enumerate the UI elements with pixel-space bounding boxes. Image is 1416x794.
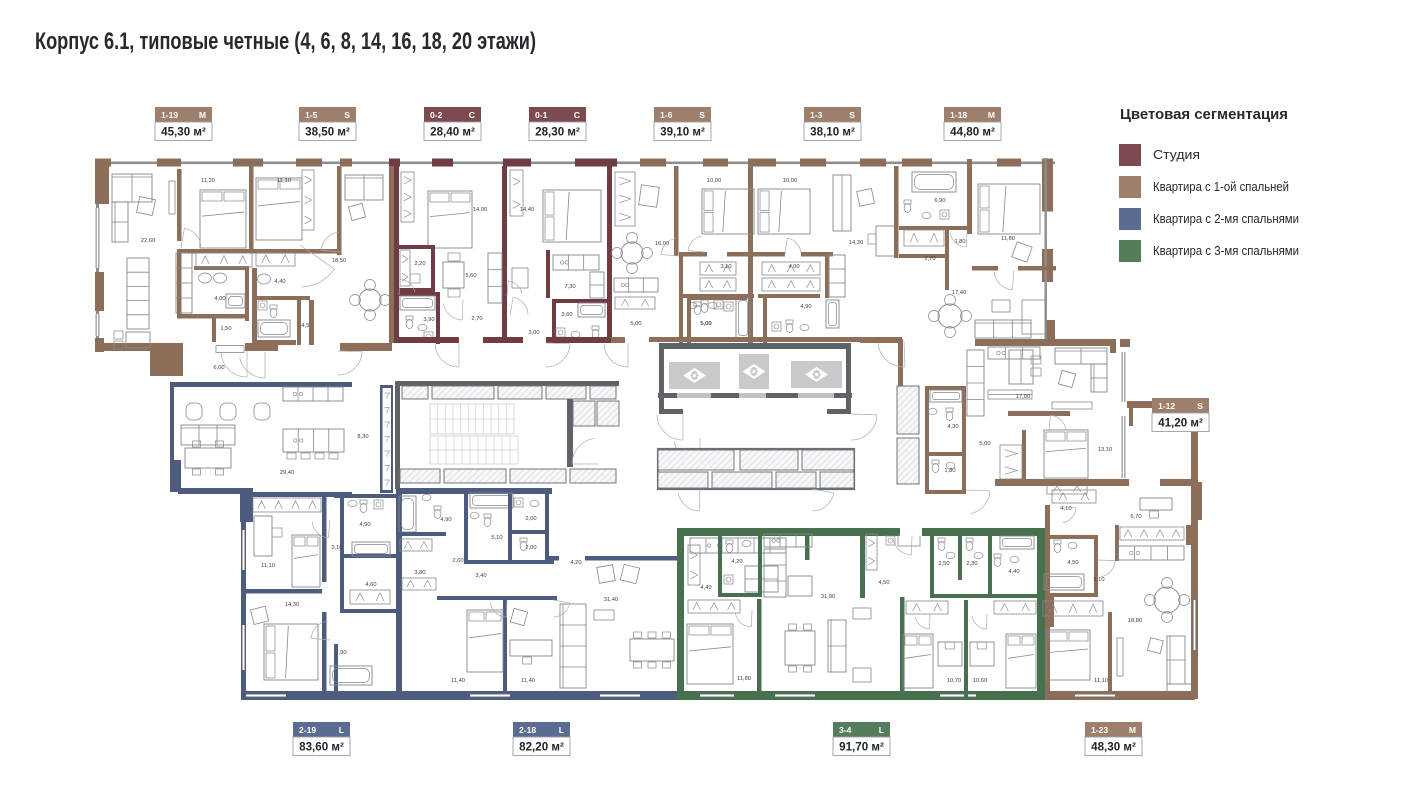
svg-text:4,60: 4,60 <box>365 582 376 588</box>
svg-text:17,40: 17,40 <box>952 290 967 296</box>
svg-text:4,90: 4,90 <box>800 304 811 310</box>
svg-text:1,80: 1,80 <box>954 239 965 245</box>
svg-text:11,80: 11,80 <box>737 676 751 682</box>
svg-text:3,00: 3,00 <box>528 330 539 336</box>
svg-text:4,40: 4,40 <box>274 279 285 285</box>
svg-text:6,90: 6,90 <box>934 198 945 204</box>
svg-text:5,60: 5,60 <box>465 273 476 279</box>
svg-text:1-19: 1-19 <box>161 110 178 120</box>
svg-text:14,30: 14,30 <box>285 602 300 608</box>
svg-text:2,70: 2,70 <box>924 256 935 262</box>
svg-text:13,10: 13,10 <box>1098 447 1113 453</box>
svg-text:2,60: 2,60 <box>452 558 463 564</box>
svg-text:83,60 м²: 83,60 м² <box>299 741 344 754</box>
svg-text:48,30 м²: 48,30 м² <box>1091 741 1136 754</box>
svg-text:41,20 м²: 41,20 м² <box>1158 417 1203 430</box>
svg-text:C: C <box>574 110 580 120</box>
svg-text:44,80 м²: 44,80 м² <box>950 126 995 139</box>
svg-text:14,40: 14,40 <box>520 207 535 213</box>
svg-text:0-2: 0-2 <box>430 110 443 120</box>
svg-text:M: M <box>1129 725 1136 735</box>
svg-text:2-18: 2-18 <box>519 725 536 735</box>
svg-text:2,00: 2,00 <box>525 516 536 522</box>
svg-text:3,10: 3,10 <box>331 545 342 551</box>
svg-text:14,00: 14,00 <box>473 207 488 213</box>
svg-text:S: S <box>699 110 705 120</box>
svg-text:1-18: 1-18 <box>950 110 967 120</box>
svg-text:10,70: 10,70 <box>947 678 962 684</box>
svg-text:22,60: 22,60 <box>141 238 156 244</box>
svg-text:4,20: 4,20 <box>570 560 581 566</box>
svg-text:3,90: 3,90 <box>423 317 434 323</box>
svg-text:6,00: 6,00 <box>213 365 224 371</box>
svg-text:11,10: 11,10 <box>1094 678 1108 684</box>
svg-text:5,00: 5,00 <box>979 441 990 447</box>
svg-text:1-23: 1-23 <box>1091 725 1108 735</box>
svg-text:18,50: 18,50 <box>332 258 347 264</box>
svg-text:S: S <box>344 110 350 120</box>
svg-text:18,80: 18,80 <box>1128 618 1143 624</box>
svg-text:8,30: 8,30 <box>357 434 368 440</box>
svg-text:C: C <box>469 110 475 120</box>
svg-text:4,90: 4,90 <box>359 522 370 528</box>
svg-text:17,00: 17,00 <box>1016 394 1031 400</box>
svg-text:5,00: 5,00 <box>700 321 711 327</box>
svg-text:16,00: 16,00 <box>655 241 670 247</box>
svg-text:45,30 м²: 45,30 м² <box>161 126 206 139</box>
svg-text:3,10: 3,10 <box>1093 577 1104 583</box>
svg-text:2-19: 2-19 <box>299 725 316 735</box>
svg-text:3,60: 3,60 <box>561 312 572 318</box>
svg-text:4,50: 4,50 <box>1067 560 1078 566</box>
svg-text:S: S <box>1197 401 1203 411</box>
svg-text:1,50: 1,50 <box>220 326 231 332</box>
svg-text:29,40: 29,40 <box>280 470 295 476</box>
svg-text:2,20: 2,20 <box>414 261 425 267</box>
svg-text:11,40: 11,40 <box>521 678 535 684</box>
svg-text:82,20 м²: 82,20 м² <box>519 741 564 754</box>
svg-text:2,50: 2,50 <box>938 561 949 567</box>
svg-text:4,90: 4,90 <box>440 517 451 523</box>
svg-text:Корпус 6.1, типовые четные (4,: Корпус 6.1, типовые четные (4, 6, 8, 14,… <box>35 28 536 55</box>
svg-text:38,10 м²: 38,10 м² <box>810 126 855 139</box>
svg-text:11,10: 11,10 <box>261 563 275 569</box>
svg-text:91,70 м²: 91,70 м² <box>839 741 884 754</box>
svg-text:4,00: 4,00 <box>214 296 225 302</box>
svg-text:10,00: 10,00 <box>707 178 722 184</box>
svg-text:6,70: 6,70 <box>1130 514 1141 520</box>
svg-text:5,10: 5,10 <box>491 535 502 541</box>
svg-text:4,50: 4,50 <box>878 580 889 586</box>
svg-text:39,10 м²: 39,10 м² <box>660 126 705 139</box>
svg-text:11,20: 11,20 <box>201 178 215 184</box>
svg-text:14,30: 14,30 <box>849 240 864 246</box>
svg-text:L: L <box>559 725 564 735</box>
svg-text:1-12: 1-12 <box>1158 401 1175 411</box>
svg-text:S: S <box>849 110 855 120</box>
svg-text:1,80: 1,80 <box>944 468 955 474</box>
svg-text:Квартира с 3-мя спальнями: Квартира с 3-мя спальнями <box>1153 244 1299 258</box>
svg-text:M: M <box>199 110 206 120</box>
svg-text:4,40: 4,40 <box>700 585 711 591</box>
svg-text:L: L <box>879 725 884 735</box>
svg-text:3,40: 3,40 <box>475 573 486 579</box>
svg-text:Квартира с 1-ой спальней: Квартира с 1-ой спальней <box>1153 180 1289 194</box>
svg-text:1-5: 1-5 <box>305 110 318 120</box>
svg-text:5,00: 5,00 <box>630 321 641 327</box>
svg-text:2,30: 2,30 <box>966 561 977 567</box>
svg-text:4,40: 4,40 <box>1008 569 1019 575</box>
svg-text:2,70: 2,70 <box>471 316 482 322</box>
svg-text:1-6: 1-6 <box>660 110 673 120</box>
svg-text:10,60: 10,60 <box>973 678 988 684</box>
svg-text:1-3: 1-3 <box>810 110 823 120</box>
svg-text:31,40: 31,40 <box>604 597 619 603</box>
svg-text:7,30: 7,30 <box>564 284 575 290</box>
svg-text:Квартира с 2-мя спальнями: Квартира с 2-мя спальнями <box>1153 212 1299 226</box>
svg-text:11,40: 11,40 <box>451 678 465 684</box>
svg-text:0-1: 0-1 <box>535 110 548 120</box>
svg-text:Цветовая сегментация: Цветовая сегментация <box>1120 107 1288 123</box>
svg-text:L: L <box>339 725 344 735</box>
svg-text:Студия: Студия <box>1153 148 1200 162</box>
svg-text:3,80: 3,80 <box>414 570 425 576</box>
svg-text:28,30 м²: 28,30 м² <box>535 126 580 139</box>
svg-text:4,30: 4,30 <box>947 424 958 430</box>
svg-text:M: M <box>988 110 995 120</box>
svg-text:31,90: 31,90 <box>821 594 836 600</box>
svg-text:3-4: 3-4 <box>839 725 852 735</box>
svg-text:38,50 м²: 38,50 м² <box>305 126 350 139</box>
svg-text:11,80: 11,80 <box>1001 236 1015 242</box>
svg-text:28,40 м²: 28,40 м² <box>430 126 475 139</box>
svg-text:10,00: 10,00 <box>783 178 798 184</box>
svg-text:4,20: 4,20 <box>731 559 742 565</box>
svg-text:11,10: 11,10 <box>277 178 291 184</box>
